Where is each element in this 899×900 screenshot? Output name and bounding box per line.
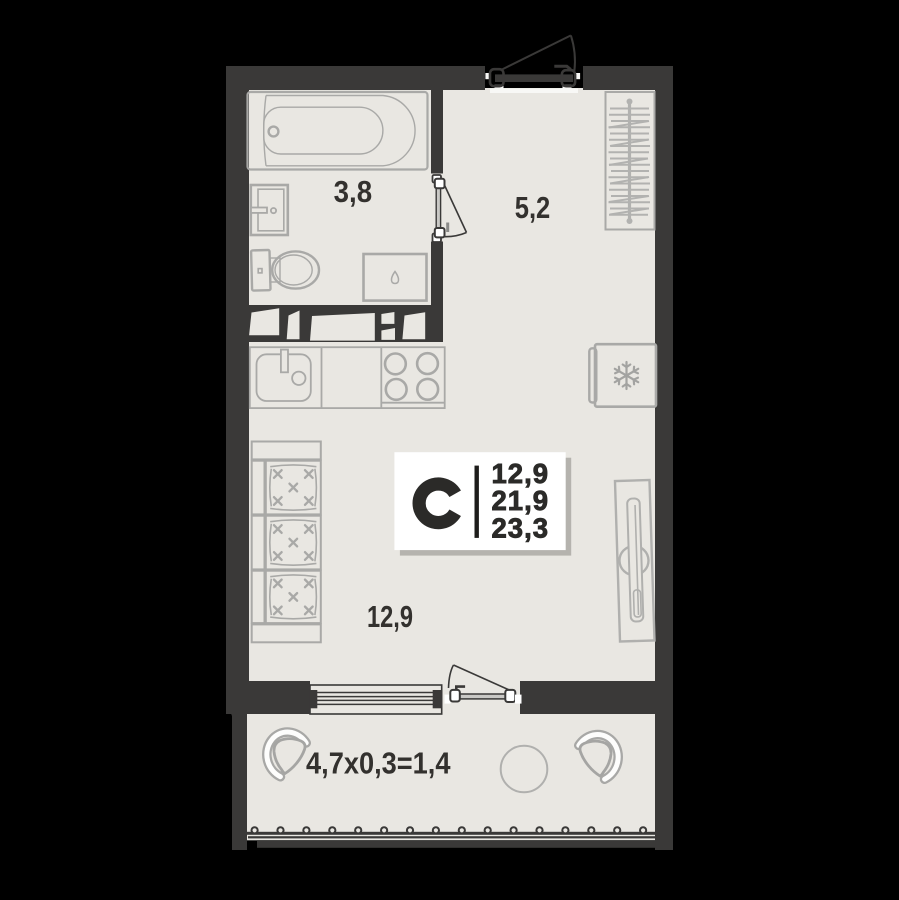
svg-text:21,9: 21,9 [492, 485, 550, 516]
svg-text:5,2: 5,2 [515, 191, 551, 225]
svg-text:23,3: 23,3 [492, 512, 550, 543]
svg-text:3,8: 3,8 [334, 175, 373, 209]
svg-text:4,7x0,3=1,4: 4,7x0,3=1,4 [306, 747, 451, 781]
svg-text:12,9: 12,9 [367, 600, 413, 634]
